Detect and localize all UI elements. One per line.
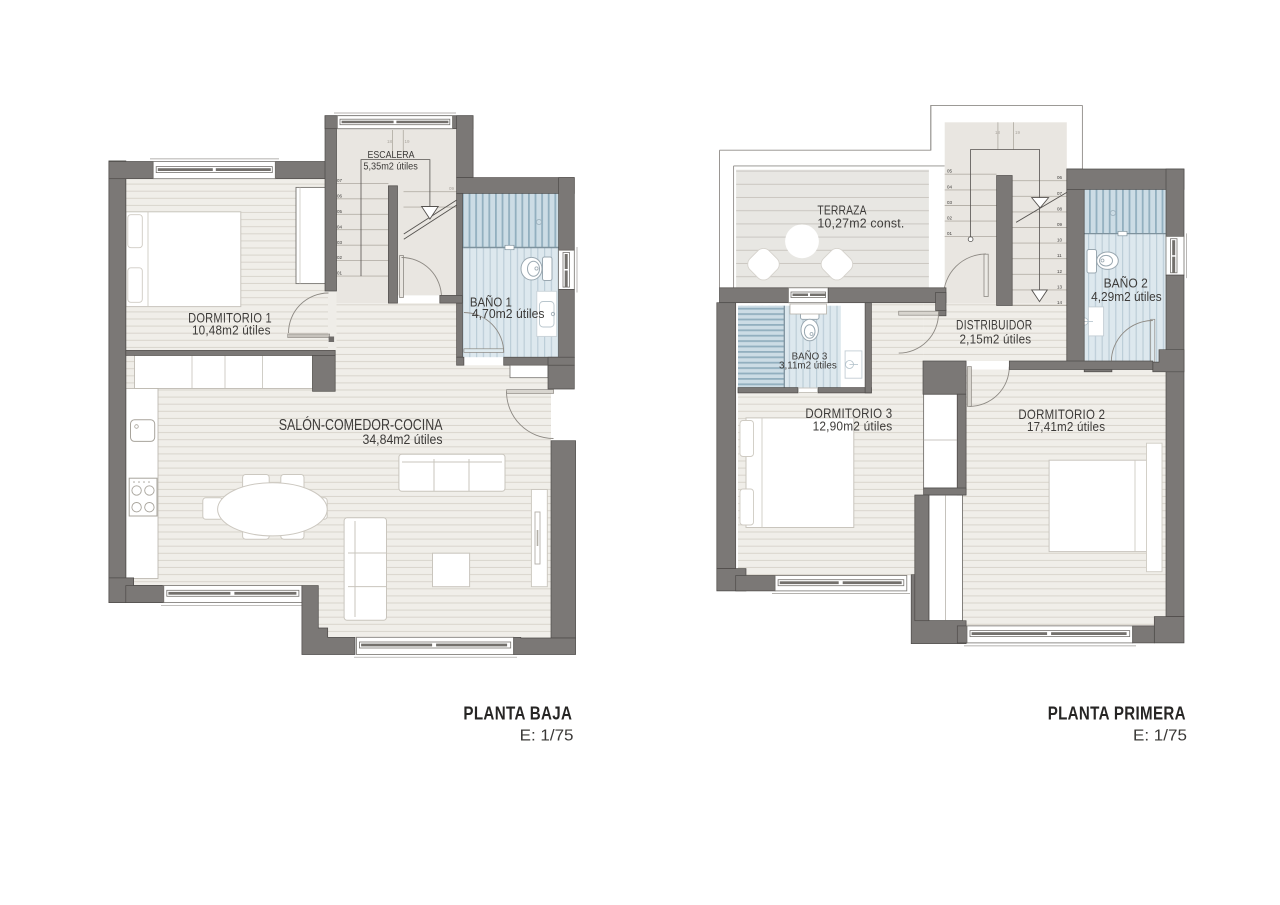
svg-text:3,11m2 útiles: 3,11m2 útiles [779,361,837,372]
svg-text:18: 18 [995,130,1001,135]
svg-text:10,48m2 útiles: 10,48m2 útiles [192,323,271,338]
svg-text:09: 09 [1057,222,1063,227]
svg-text:04: 04 [337,224,343,229]
svg-text:01: 01 [947,231,953,236]
svg-text:ESCALERA: ESCALERA [368,149,415,161]
svg-text:02: 02 [947,216,953,221]
svg-text:17,41m2 útiles: 17,41m2 útiles [1027,419,1105,434]
svg-text:05: 05 [337,209,343,214]
svg-text:06: 06 [337,193,343,198]
svg-text:05: 05 [947,169,953,174]
svg-text:4,70m2 útiles: 4,70m2 útiles [472,307,545,321]
svg-text:5,35m2 útiles: 5,35m2 útiles [363,162,417,173]
svg-text:02: 02 [337,255,343,260]
svg-text:01: 01 [337,271,343,276]
svg-text:19: 19 [1015,130,1021,135]
svg-text:07: 07 [337,178,343,183]
svg-text:2,15m2 útiles: 2,15m2 útiles [960,332,1032,347]
svg-text:10: 10 [1057,238,1063,243]
svg-text:34,84m2 útiles: 34,84m2 útiles [363,431,443,447]
svg-text:03: 03 [337,240,343,245]
svg-text:10,27m2 const.: 10,27m2 const. [817,215,904,230]
svg-text:09: 09 [449,186,455,191]
svg-text:08: 08 [1057,206,1063,211]
svg-text:DISTRIBUIDOR: DISTRIBUIDOR [956,318,1032,333]
svg-text:PLANTA BAJA: PLANTA BAJA [463,703,572,723]
svg-text:19: 19 [405,139,411,144]
svg-text:18: 18 [387,139,393,144]
svg-text:PLANTA PRIMERA: PLANTA PRIMERA [1048,703,1186,723]
svg-text:E: 1/75: E: 1/75 [1133,727,1187,744]
svg-text:BAÑO 2: BAÑO 2 [1104,277,1148,291]
svg-text:14: 14 [1057,300,1063,305]
svg-text:03: 03 [947,200,953,205]
svg-text:06: 06 [1057,175,1063,180]
svg-text:04: 04 [947,184,953,189]
svg-text:12: 12 [1057,269,1063,274]
svg-text:4,29m2 útiles: 4,29m2 útiles [1091,290,1162,304]
svg-text:11: 11 [1057,253,1062,258]
svg-text:12,90m2 útiles: 12,90m2 útiles [813,419,893,434]
svg-text:E: 1/75: E: 1/75 [520,727,574,744]
svg-text:13: 13 [1057,284,1063,289]
